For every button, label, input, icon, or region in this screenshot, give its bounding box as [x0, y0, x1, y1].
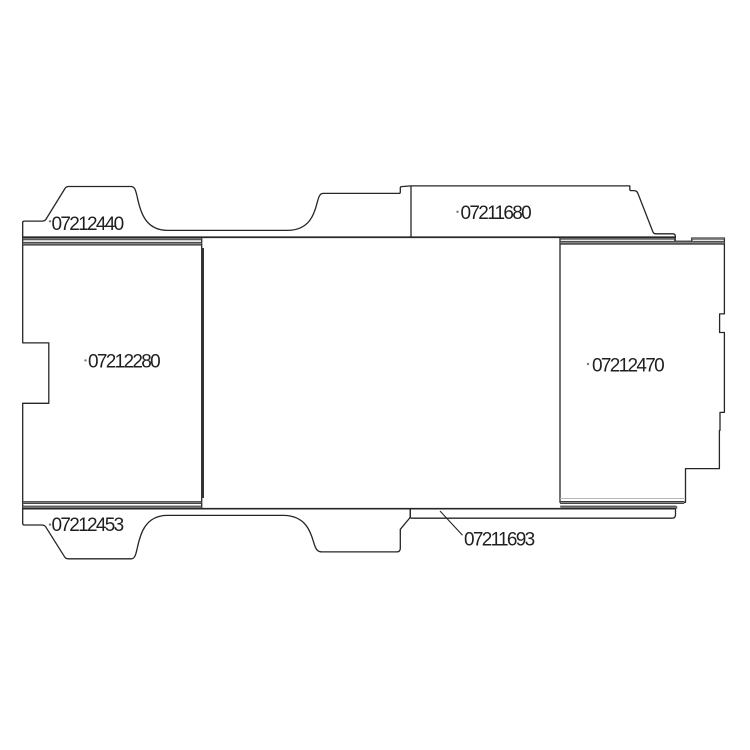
svg-text:07212440: 07212440 — [52, 214, 124, 235]
svg-text:07211693: 07211693 — [464, 530, 535, 551]
svg-text:07212453: 07212453 — [52, 515, 124, 536]
svg-text:07211680: 07211680 — [461, 203, 532, 224]
svg-text:07212470: 07212470 — [592, 356, 664, 377]
svg-text:07212280: 07212280 — [88, 352, 160, 373]
